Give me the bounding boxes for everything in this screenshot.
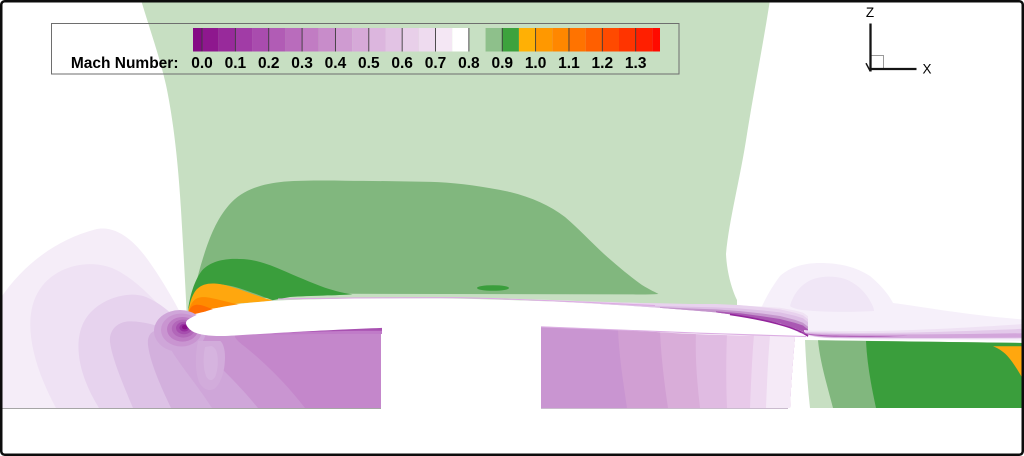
svg-text:0.8: 0.8 [458,55,480,72]
svg-text:X: X [922,62,931,77]
svg-text:1.3: 1.3 [625,55,647,72]
svg-text:0.4: 0.4 [325,55,347,72]
svg-text:0.9: 0.9 [491,55,513,72]
svg-text:1.0: 1.0 [525,55,547,72]
svg-text:1.2: 1.2 [592,55,614,72]
svg-text:0.2: 0.2 [258,55,280,72]
svg-text:0.0: 0.0 [191,55,213,72]
svg-text:1.1: 1.1 [558,55,580,72]
svg-text:0.6: 0.6 [391,55,413,72]
svg-text:0.7: 0.7 [425,55,447,72]
svg-text:0.3: 0.3 [291,55,313,72]
svg-text:0.5: 0.5 [358,55,380,72]
svg-text:Mach Number:: Mach Number: [71,55,179,72]
svg-text:0.1: 0.1 [225,55,247,72]
svg-text:Z: Z [866,5,874,20]
